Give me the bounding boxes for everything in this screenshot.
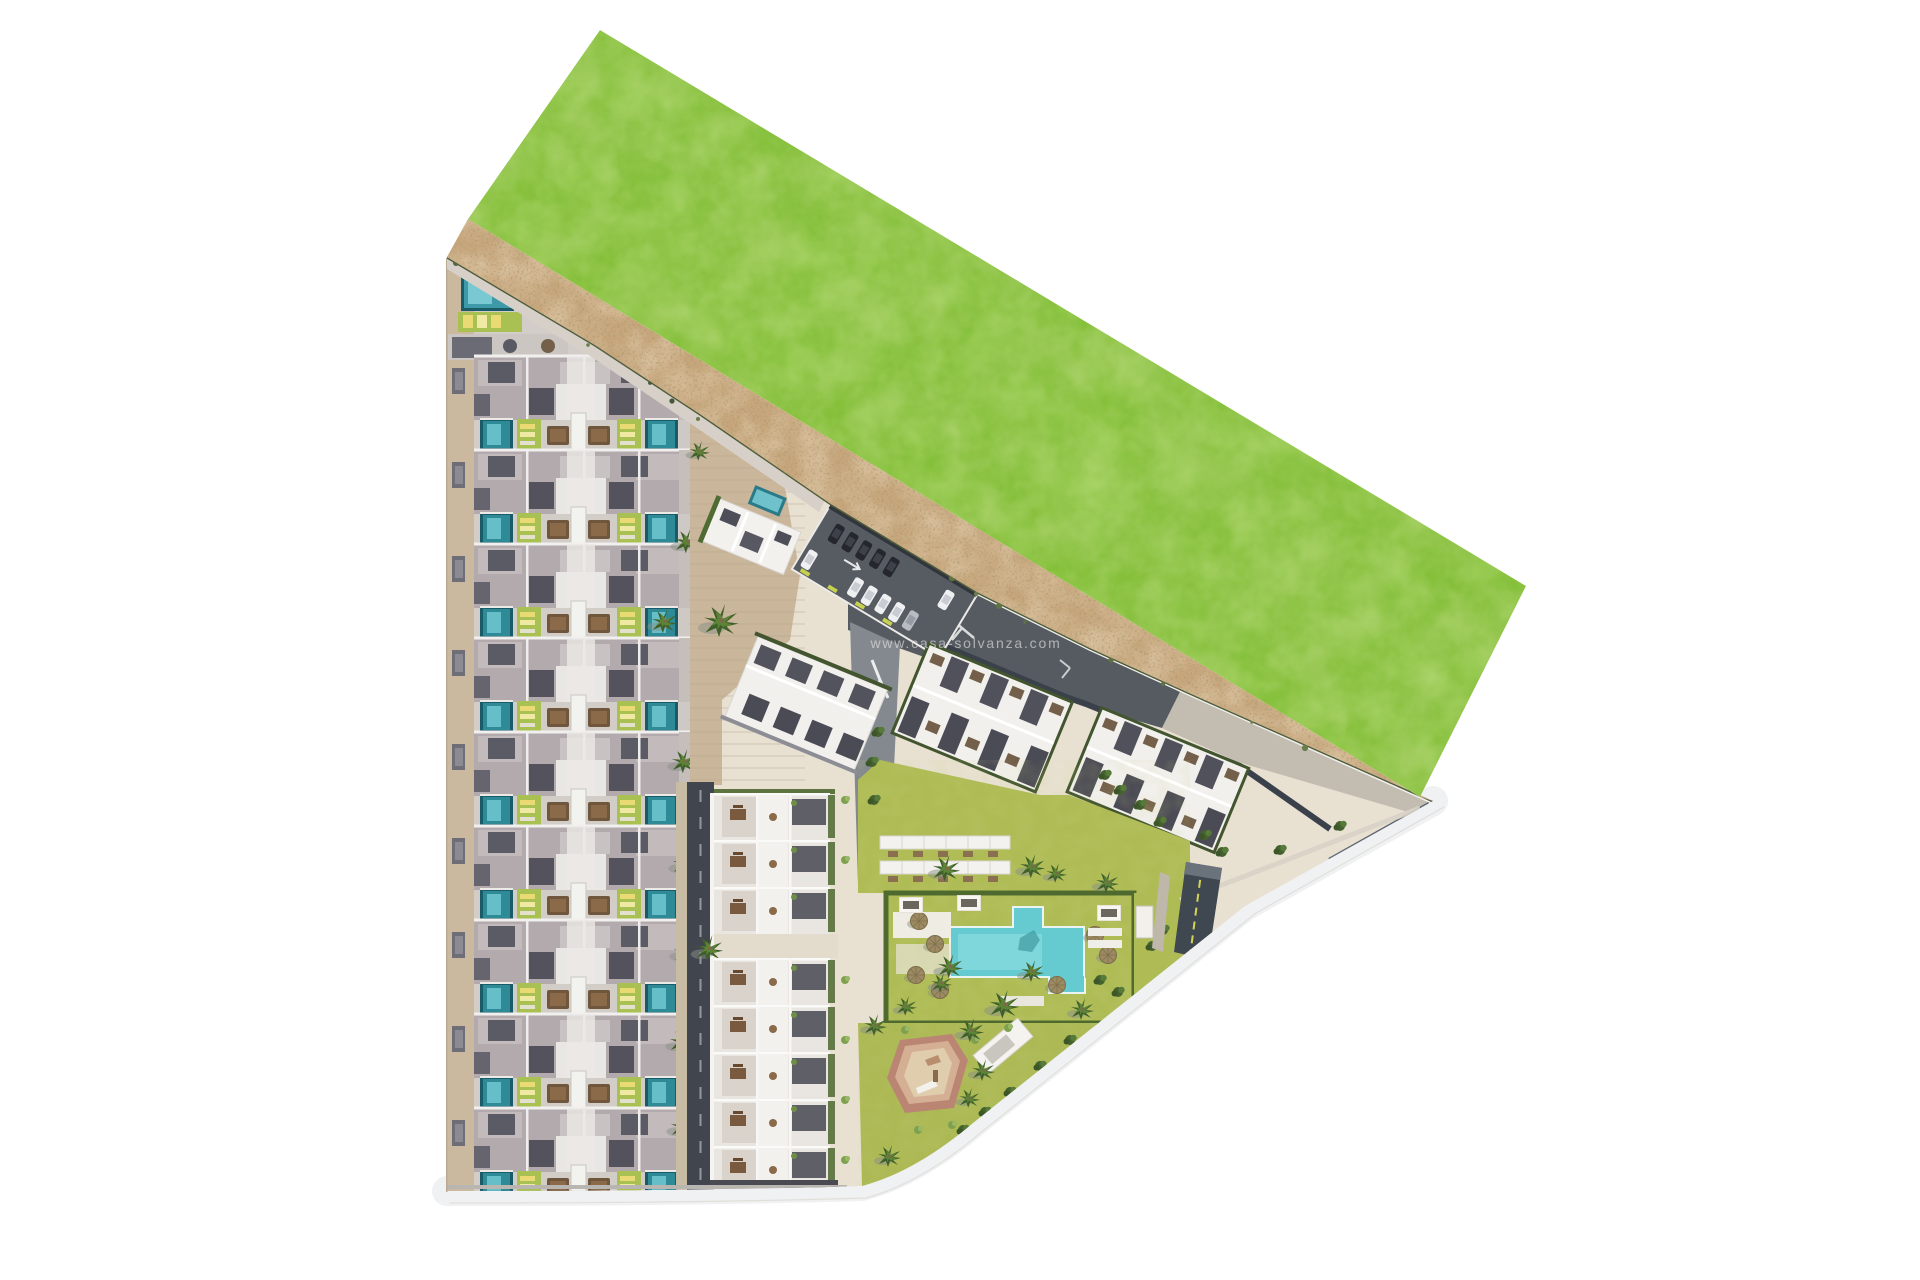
svg-text:www.casa-solvanza.com: www.casa-solvanza.com bbox=[869, 635, 1061, 651]
